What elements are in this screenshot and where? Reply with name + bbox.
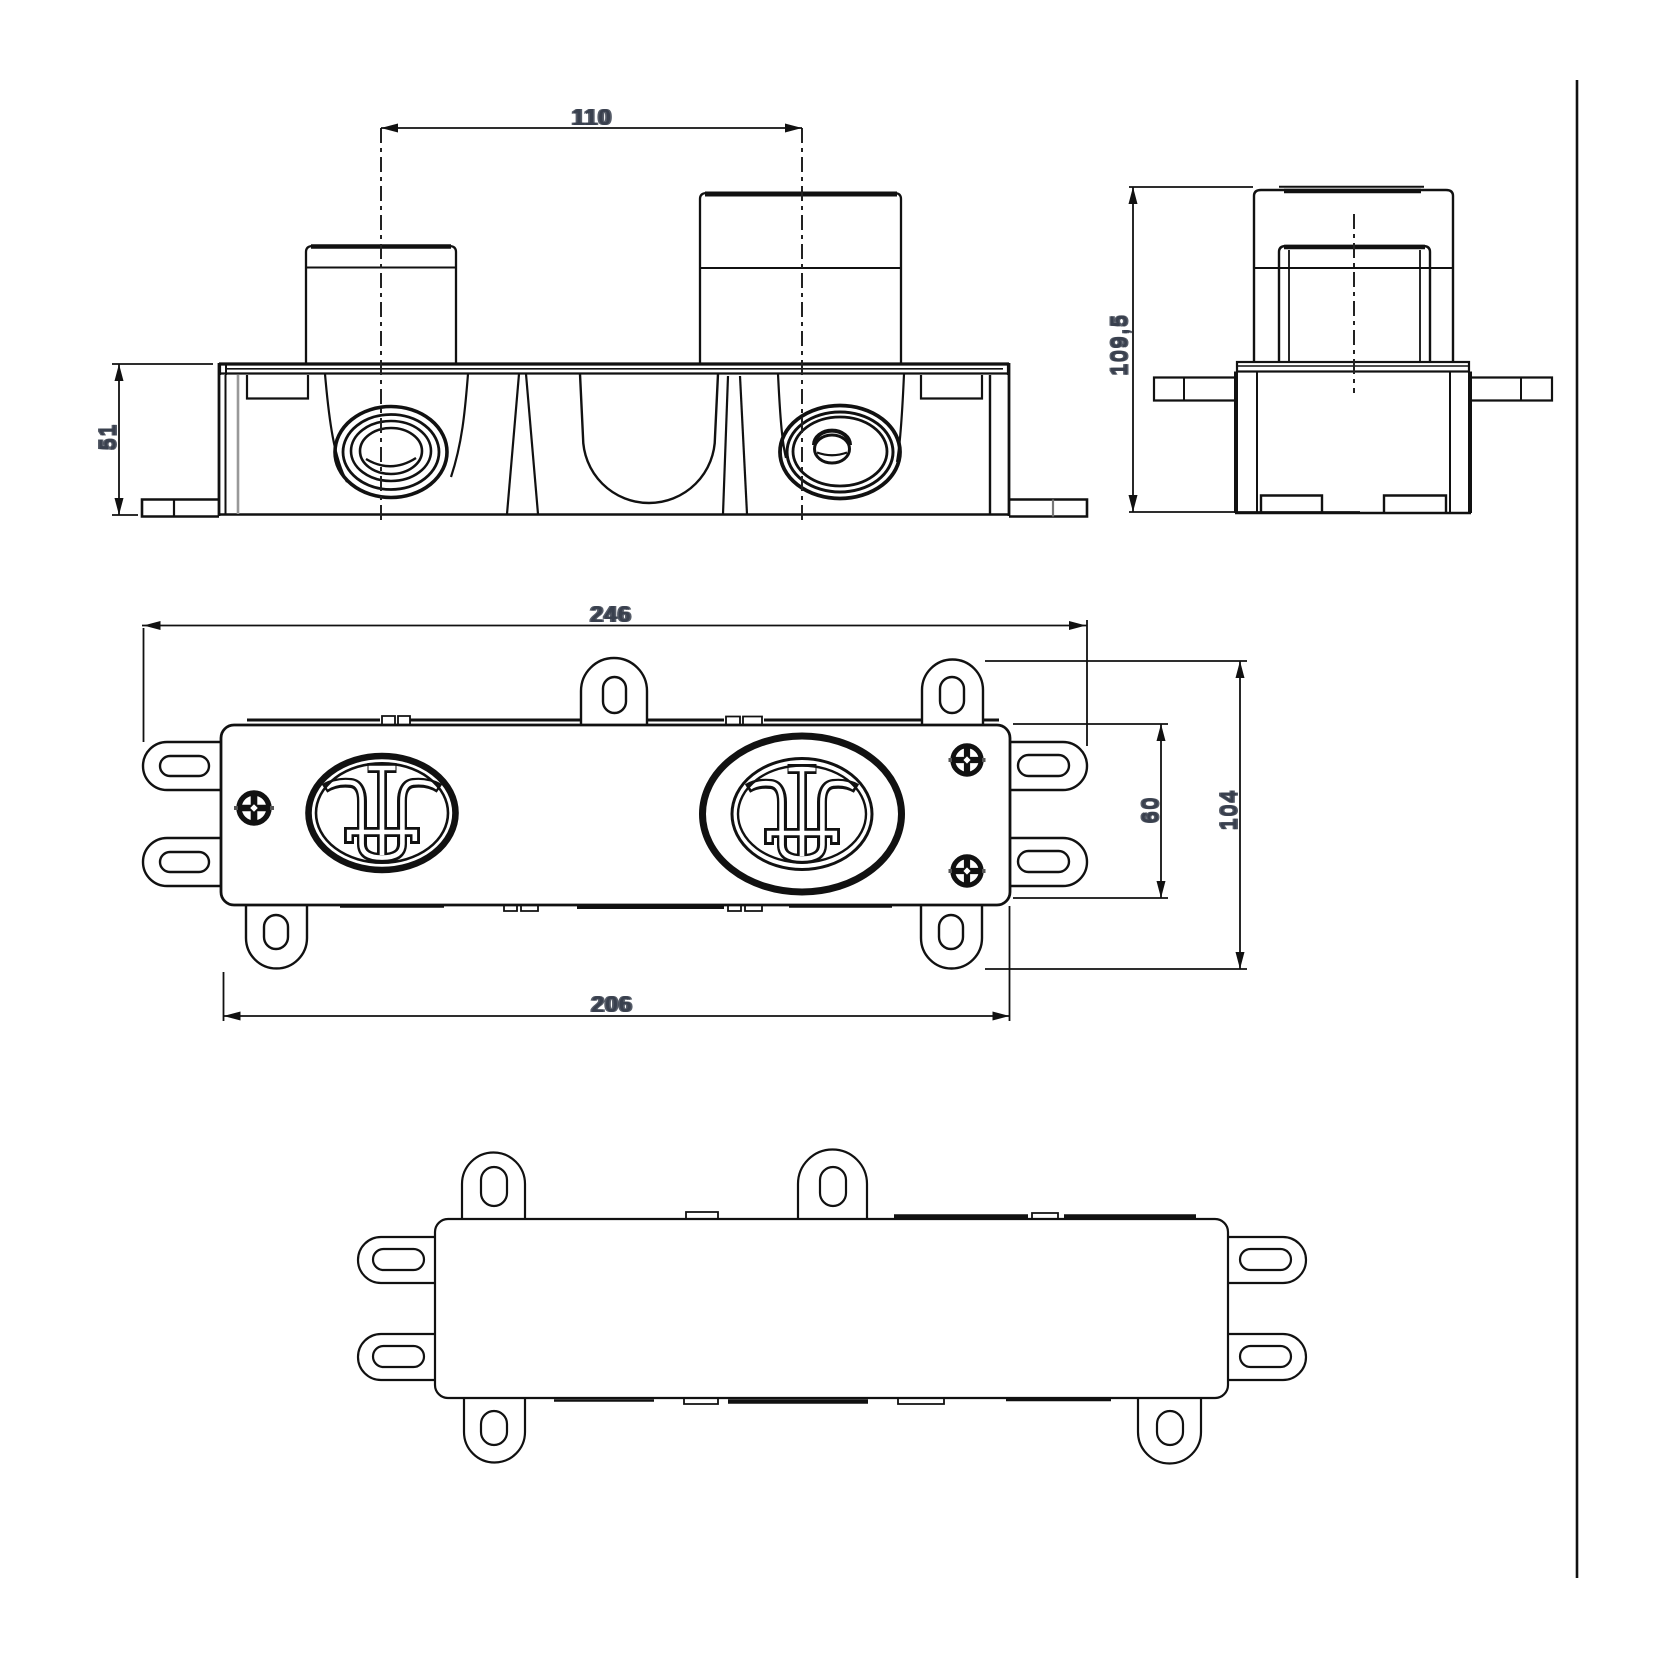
svg-text:109,5: 109,5 bbox=[1106, 314, 1132, 377]
svg-text:51: 51 bbox=[95, 423, 121, 451]
svg-text:110: 110 bbox=[572, 104, 612, 130]
svg-text:206: 206 bbox=[591, 991, 632, 1017]
svg-text:60: 60 bbox=[1137, 796, 1163, 824]
svg-text:246: 246 bbox=[590, 601, 631, 627]
svg-text:104: 104 bbox=[1216, 789, 1242, 830]
